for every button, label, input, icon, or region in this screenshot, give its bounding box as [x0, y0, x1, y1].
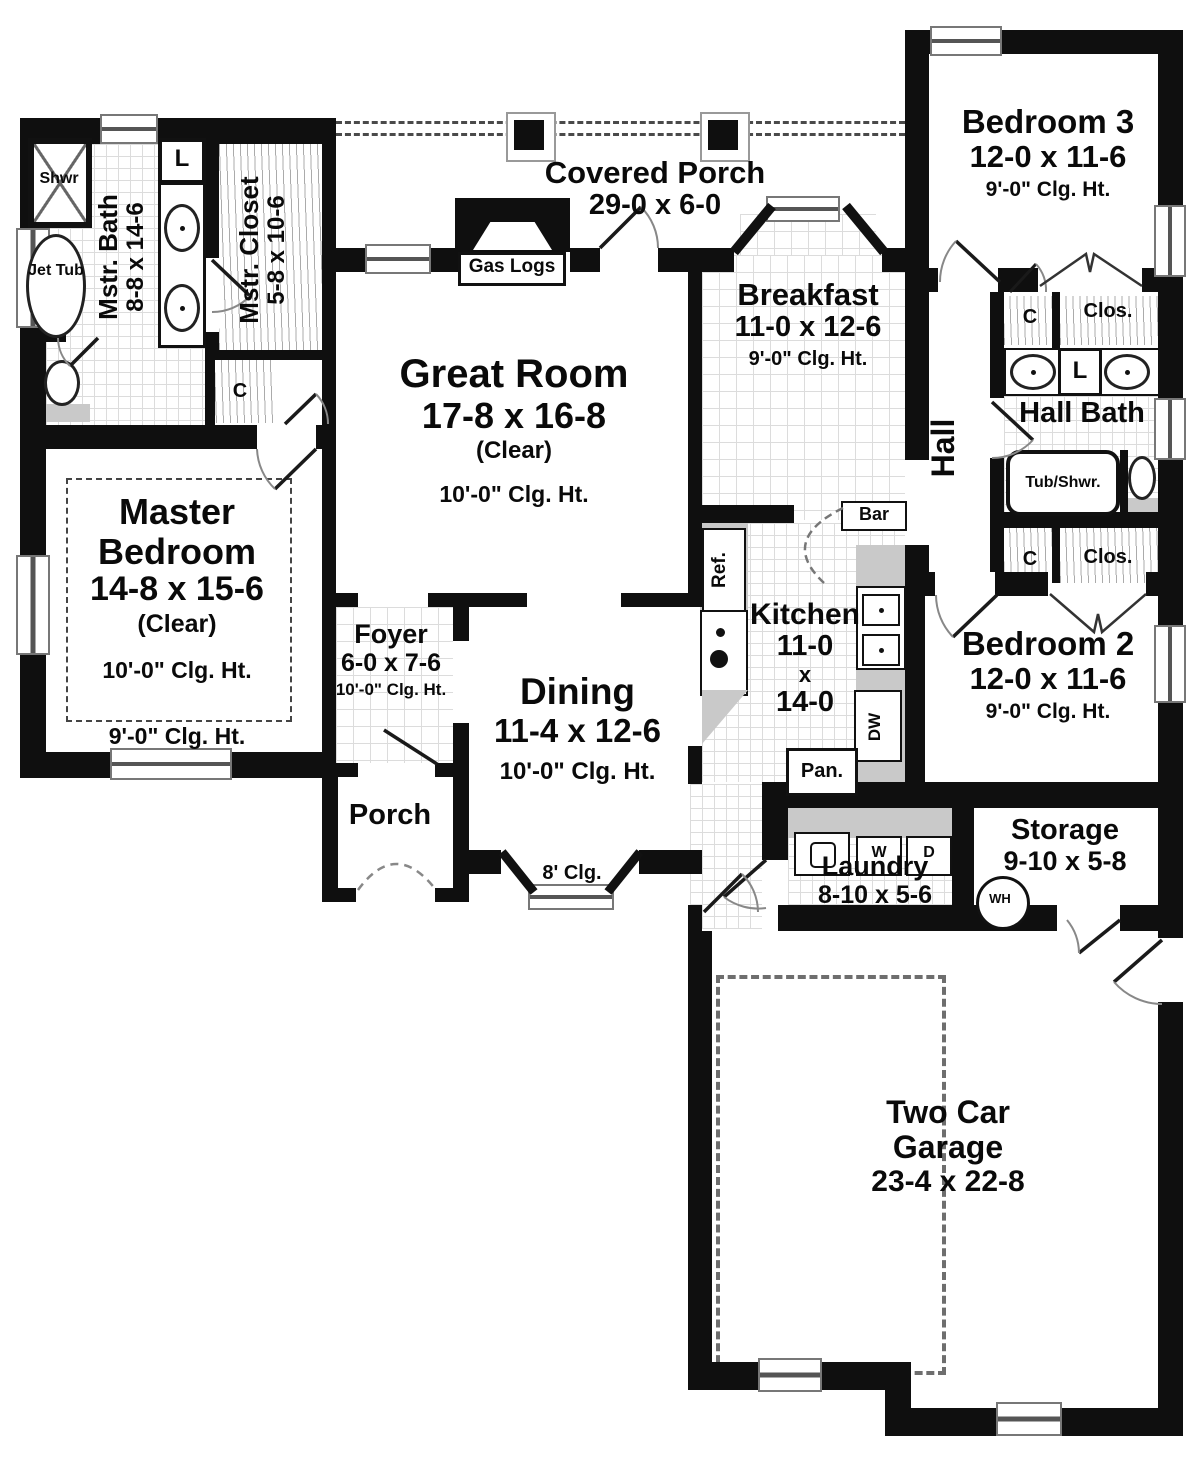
ceiling-height: 9'-0" Clg. Ht.: [933, 700, 1163, 723]
master-closet-label: Mstr. Closet 5-8 x 10-6: [235, 140, 299, 360]
room-dims: 8-10 x 5-6: [795, 882, 955, 910]
room-dims: 9-10 x 5-8: [985, 847, 1145, 877]
ceiling-height: 10'-0" Clg. Ht.: [465, 759, 690, 785]
ceiling-height: 10'-0" Clg. Ht.: [328, 681, 454, 700]
room-dim-h: 14-0: [745, 687, 865, 719]
bifold-door: [1040, 254, 1142, 286]
room-dim-x: x: [745, 663, 865, 687]
covered-porch-label: Covered Porch 29-0 x 6-0: [430, 156, 880, 222]
door-swing: [992, 440, 1033, 458]
room-dims: 12-0 x 11-6: [933, 140, 1163, 174]
room-name: Bedroom: [62, 532, 292, 572]
bar-counter-edge: [805, 508, 843, 583]
room-name: Bedroom 2: [933, 626, 1163, 662]
room-dims: 6-0 x 7-6: [328, 650, 454, 678]
door-swing: [316, 394, 328, 424]
refrigerator-label: Ref.: [710, 533, 738, 607]
ceiling-height: 10'-0" Clg. Ht.: [394, 482, 634, 507]
door-leaf: [704, 874, 742, 912]
tub-shower-label: Tub/Shwr.: [1010, 474, 1116, 492]
floor-plan: Covered Porch 29-0 x 6-0 Bedroom 3 12-0 …: [0, 0, 1200, 1468]
room-dims: 11-0 x 12-6: [708, 312, 908, 344]
master-bedroom-label: Master Bedroom 14-8 x 15-6 (Clear) 10'-0…: [62, 492, 292, 683]
room-name: Storage: [985, 815, 1145, 847]
closet-label: C: [1006, 548, 1054, 570]
door-swing: [1036, 264, 1046, 292]
door-swing: [940, 241, 956, 282]
door-leaf: [1079, 920, 1120, 953]
room-name: Master: [62, 492, 292, 532]
closet-label: Clos.: [1062, 546, 1154, 568]
linen-label: L: [1058, 358, 1102, 384]
door-leaf: [285, 394, 316, 424]
bay-ceiling-label: 8' Clg.: [512, 862, 632, 884]
room-name: Breakfast: [708, 278, 908, 312]
door-swing: [724, 897, 766, 909]
room-name: Great Room: [394, 352, 634, 396]
ceiling-height: 10'-0" Clg. Ht.: [62, 658, 292, 683]
porch-entry-arc: [358, 864, 436, 890]
door-swing: [1114, 982, 1162, 1004]
bedroom2-label: Bedroom 2 12-0 x 11-6 9'-0" Clg. Ht.: [933, 626, 1163, 723]
room-name: Bedroom 3: [933, 104, 1163, 140]
storage-label: Storage 9-10 x 5-8: [985, 815, 1145, 877]
bar-label: Bar: [843, 505, 905, 525]
ceiling-height: 9'-0" Clg. Ht.: [62, 724, 292, 749]
room-dims: 5-8 x 10-6: [264, 140, 290, 360]
dishwasher-label: DW: [866, 695, 892, 759]
room-name: Two Car: [818, 1095, 1078, 1130]
room-name: Foyer: [328, 620, 454, 650]
linen-label: L: [158, 146, 206, 172]
kitchen-label: Kitchen 11-0 x 14-0: [745, 598, 865, 719]
hall-label: Hall: [926, 368, 976, 528]
room-name: Mstr. Closet: [235, 140, 264, 360]
closet-label: Clos.: [1062, 300, 1154, 322]
room-dims: 23-4 x 22-8: [818, 1165, 1078, 1198]
room-name: Covered Porch: [430, 156, 880, 190]
room-dims: 12-0 x 11-6: [933, 662, 1163, 696]
room-name: Garage: [818, 1130, 1078, 1165]
door-leaf: [1010, 264, 1036, 292]
bedroom3-label: Bedroom 3 12-0 x 11-6 9'-0" Clg. Ht.: [933, 104, 1163, 201]
door-swing: [1067, 920, 1079, 953]
porch-label: Porch: [328, 800, 452, 832]
closet-label: C: [1006, 306, 1054, 328]
dining-label: Dining 11-4 x 12-6 10'-0" Clg. Ht.: [465, 672, 690, 785]
room-dims: 17-8 x 16-8: [394, 396, 634, 436]
door-leaf: [275, 449, 316, 489]
ceiling-height: 9'-0" Clg. Ht.: [933, 178, 1163, 201]
door-leaf: [956, 241, 1000, 282]
room-dim-w: 11-0: [745, 631, 865, 663]
great-room-label: Great Room 17-8 x 16-8 (Clear) 10'-0" Cl…: [394, 352, 634, 507]
counter-corner: [702, 690, 748, 744]
dryer-label: D: [906, 844, 952, 862]
room-name: Dining: [465, 672, 690, 713]
garage-label: Two Car Garage 23-4 x 22-8: [818, 1095, 1078, 1198]
door-leaf: [384, 730, 437, 764]
master-bath-label: Mstr. Bath 8-8 x 14-6: [94, 152, 158, 362]
room-name: Mstr. Bath: [94, 152, 123, 362]
room-dims: 11-4 x 12-6: [465, 713, 690, 749]
door-swing: [257, 449, 275, 489]
water-heater-label: WH: [976, 892, 1024, 906]
hall-bath-label: Hall Bath: [1002, 398, 1162, 430]
room-dims: 14-8 x 15-6: [62, 571, 292, 608]
jet-tub-label: Jet Tub: [28, 262, 84, 280]
door-swing: [58, 338, 70, 366]
foyer-label: Foyer 6-0 x 7-6 10'-0" Clg. Ht.: [328, 620, 454, 700]
room-name: Kitchen: [745, 598, 865, 631]
shower-label: Shwr: [28, 170, 90, 188]
breakfast-label: Breakfast 11-0 x 12-6 9'-0" Clg. Ht.: [708, 278, 908, 370]
pantry-label: Pan.: [788, 760, 856, 782]
door-leaf: [1114, 940, 1162, 982]
room-clear: (Clear): [394, 438, 634, 464]
gas-logs-label: Gas Logs: [462, 257, 562, 278]
room-dims: 8-8 x 14-6: [123, 152, 149, 362]
washer-label: W: [856, 844, 902, 862]
room-clear: (Clear): [62, 611, 292, 639]
closet-label: C: [212, 380, 268, 402]
ceiling-height: 9'-0" Clg. Ht.: [708, 348, 908, 370]
room-dims: 29-0 x 6-0: [430, 190, 880, 222]
